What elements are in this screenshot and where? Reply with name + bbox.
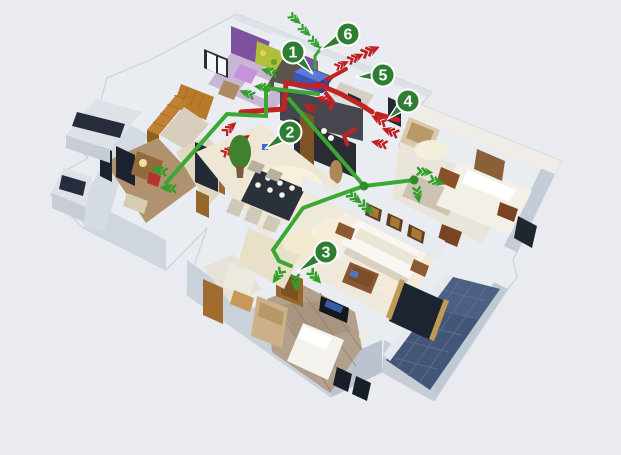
svg-text:1: 1 xyxy=(289,45,298,62)
svg-text:6: 6 xyxy=(344,27,353,44)
svg-text:3: 3 xyxy=(322,245,331,262)
svg-text:4: 4 xyxy=(404,94,413,111)
svg-text:5: 5 xyxy=(379,68,388,85)
svg-text:2: 2 xyxy=(286,125,295,142)
